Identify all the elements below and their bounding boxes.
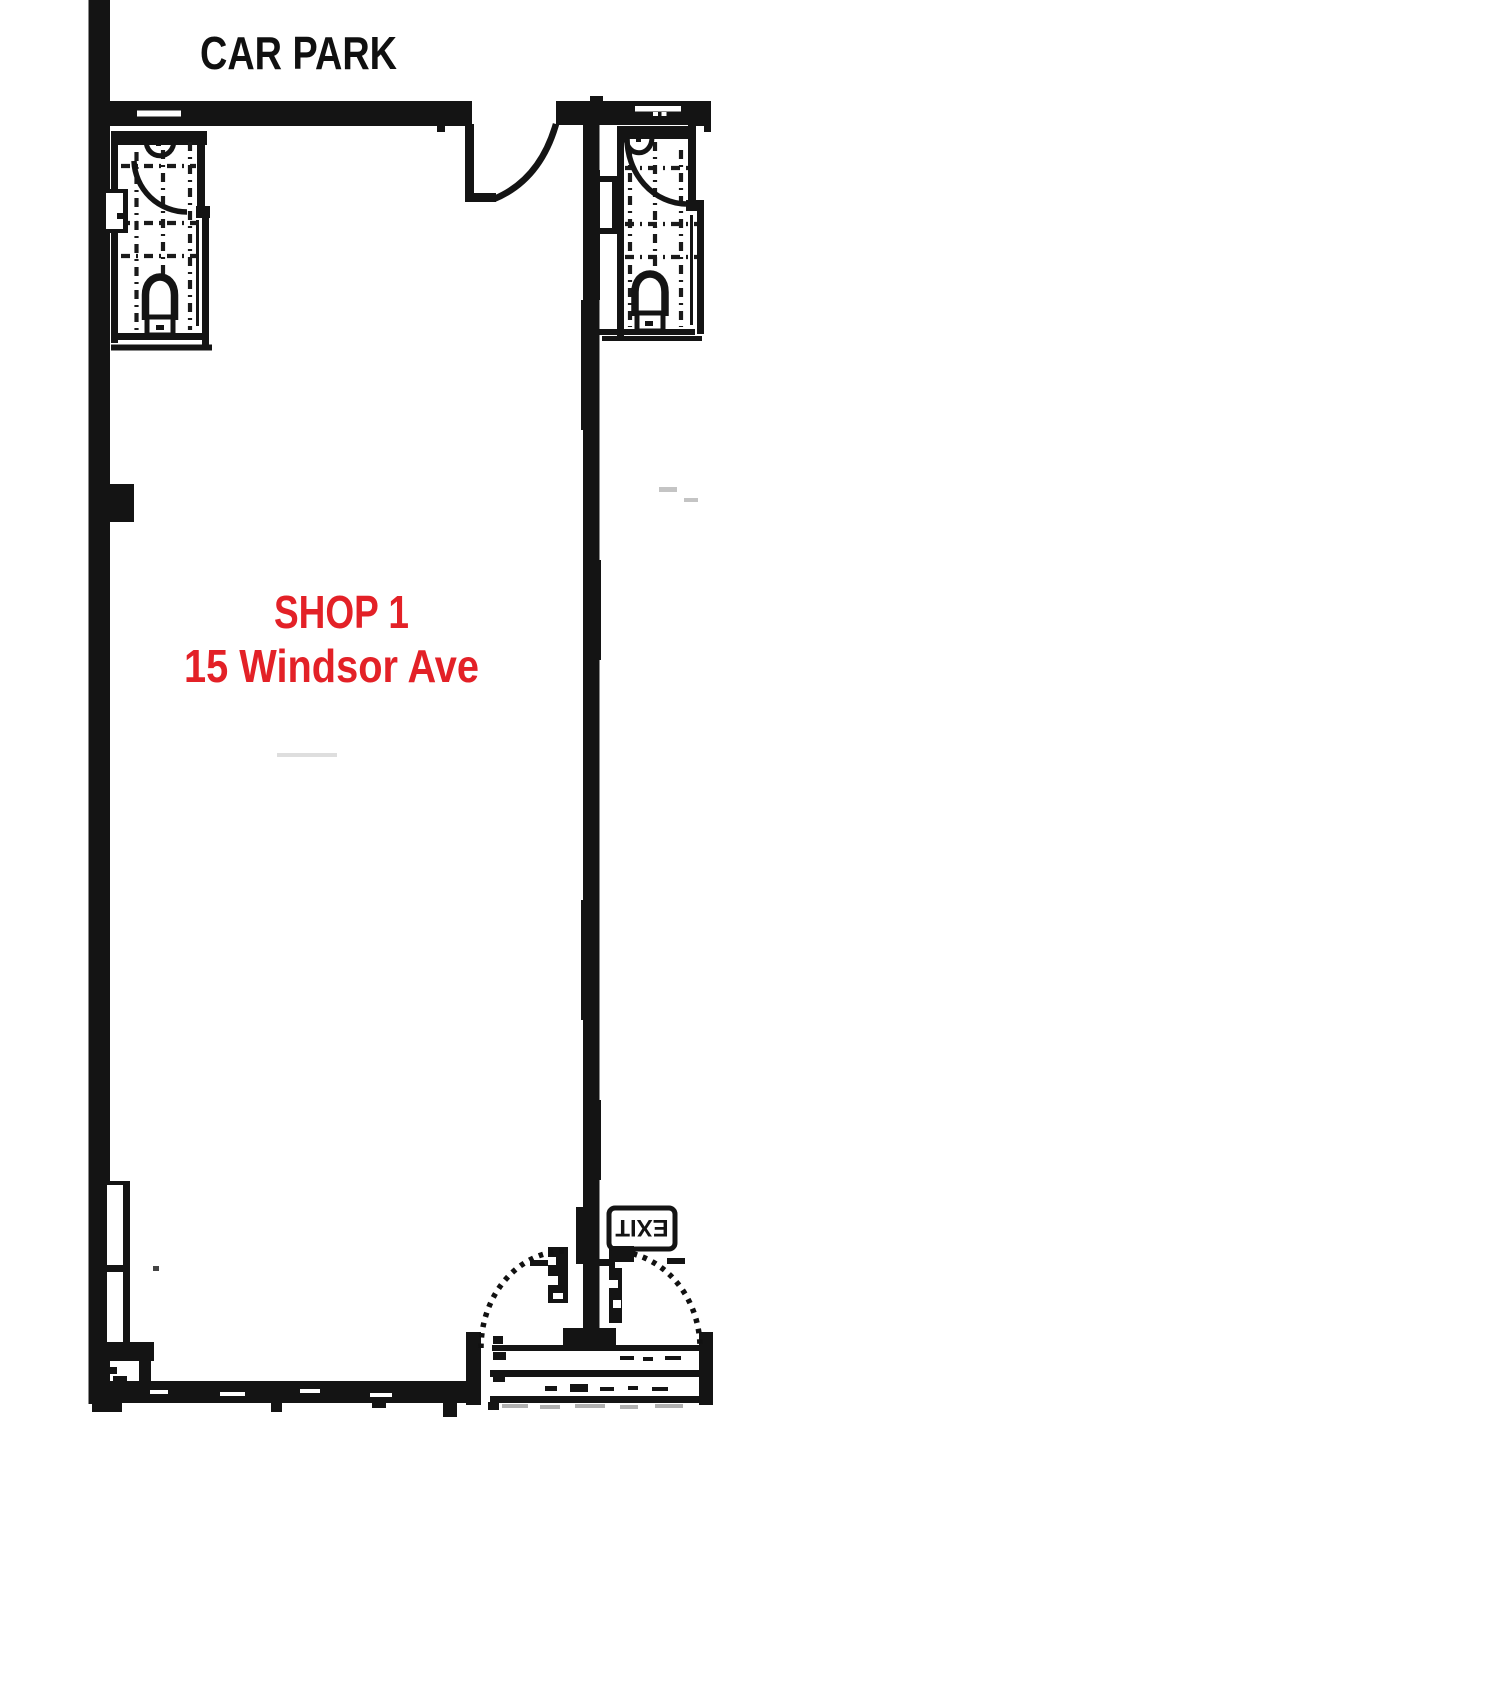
svg-text:EXIT: EXIT xyxy=(615,1214,669,1241)
svg-text:CAR PARK: CAR PARK xyxy=(200,27,397,79)
svg-text:SHOP 1: SHOP 1 xyxy=(274,586,409,638)
svg-text:15 Windsor Ave: 15 Windsor Ave xyxy=(184,640,479,692)
